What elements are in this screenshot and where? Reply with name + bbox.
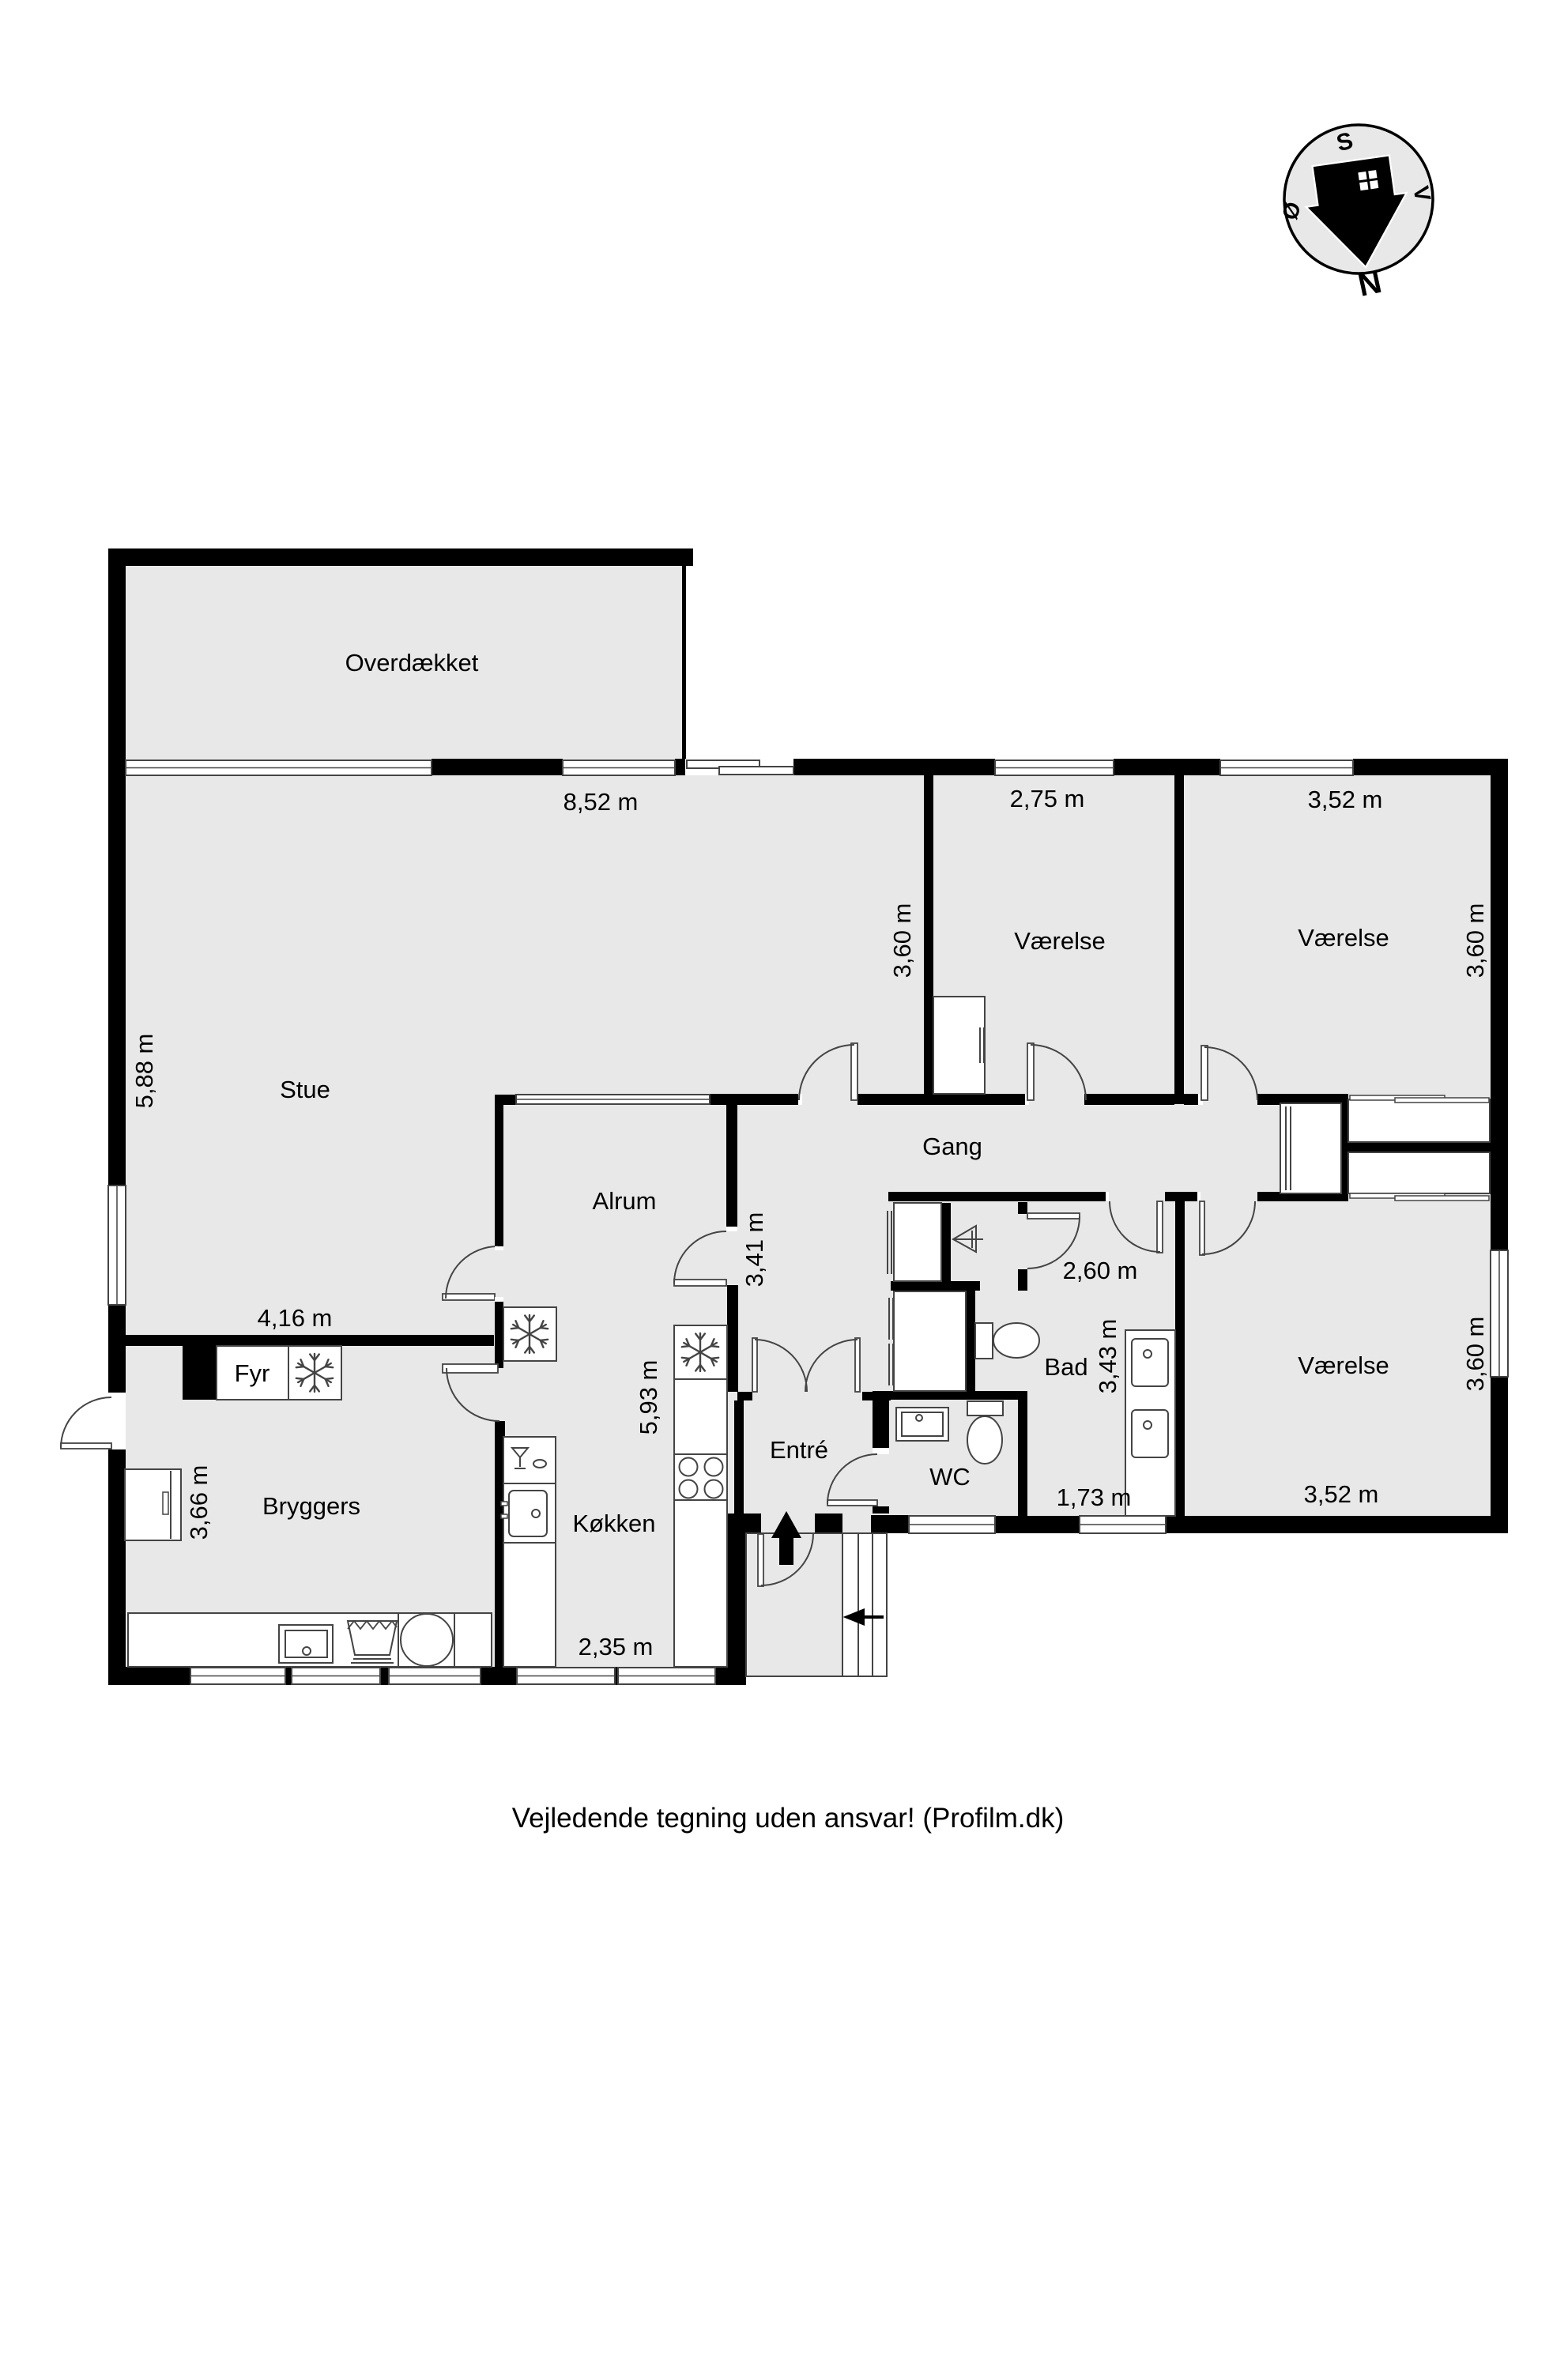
svg-text:3,60 m: 3,60 m (1461, 903, 1489, 978)
svg-text:1,73 m: 1,73 m (1057, 1483, 1132, 1511)
svg-text:3,60 m: 3,60 m (888, 903, 916, 978)
svg-text:Køkken: Køkken (572, 1510, 655, 1537)
svg-text:8,52 m: 8,52 m (563, 788, 639, 816)
svg-text:3,66 m: 3,66 m (185, 1465, 213, 1540)
svg-text:2,75 m: 2,75 m (1010, 785, 1085, 812)
svg-text:5,88 m: 5,88 m (130, 1034, 158, 1109)
svg-text:4,16 m: 4,16 m (258, 1304, 333, 1332)
svg-text:Stue: Stue (280, 1076, 330, 1103)
svg-text:Bryggers: Bryggers (262, 1492, 360, 1520)
svg-text:Fyr: Fyr (235, 1359, 270, 1387)
svg-text:3,52 m: 3,52 m (1308, 786, 1383, 813)
svg-text:3,43 m: 3,43 m (1094, 1319, 1121, 1394)
svg-text:2,35 m: 2,35 m (579, 1633, 654, 1661)
svg-text:Overdækket: Overdækket (345, 649, 479, 677)
svg-text:Alrum: Alrum (593, 1187, 657, 1215)
svg-text:2,60 m: 2,60 m (1063, 1257, 1138, 1284)
svg-text:Værelse: Værelse (1298, 924, 1389, 952)
svg-text:3,60 m: 3,60 m (1461, 1317, 1489, 1392)
svg-text:5,93 m: 5,93 m (635, 1360, 662, 1435)
svg-text:Værelse: Værelse (1298, 1351, 1389, 1379)
svg-text:3,52 m: 3,52 m (1304, 1480, 1379, 1508)
svg-text:Værelse: Værelse (1014, 927, 1105, 955)
svg-text:WC: WC (929, 1463, 971, 1491)
svg-text:Bad: Bad (1044, 1353, 1087, 1381)
svg-text:Gang: Gang (922, 1133, 982, 1160)
svg-text:Vejledende tegning uden ansvar: Vejledende tegning uden ansvar! (Profilm… (512, 1803, 1064, 1834)
svg-text:Entré: Entré (770, 1436, 828, 1464)
svg-text:3,41 m: 3,41 m (741, 1212, 768, 1287)
